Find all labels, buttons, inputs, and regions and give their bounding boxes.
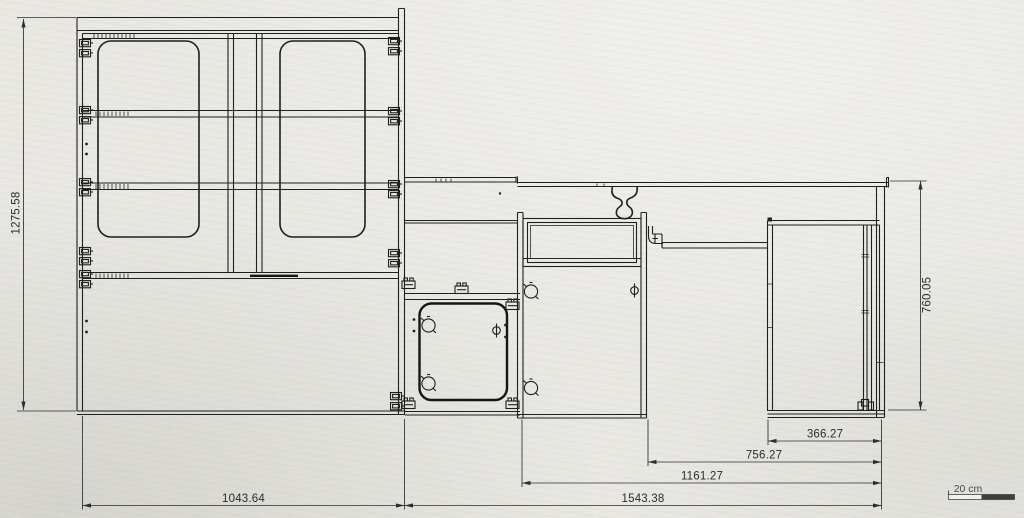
dim-label-inner-width: 756.27 xyxy=(746,450,782,462)
dimension-right-height: 760.05 xyxy=(888,181,934,410)
dimension-total-width: 1543.38 xyxy=(405,493,882,508)
door-hinge-cup xyxy=(421,375,436,392)
hinge-hardware xyxy=(389,250,403,267)
dimension-left-height: 1275.58 xyxy=(11,18,77,412)
dim-label-desk-width: 366.27 xyxy=(807,429,843,441)
dim-label-total-width: 1543.38 xyxy=(622,493,665,505)
dimension-desk-width: 366.27 xyxy=(768,429,882,444)
desk-unit xyxy=(768,187,885,418)
door-knob xyxy=(631,284,639,298)
dimension-mid-width: 1161.27 xyxy=(522,471,882,486)
dimension-left-width: 1043.64 xyxy=(83,493,405,508)
mounting-rail-hatch xyxy=(94,34,134,278)
door-hinge-cup xyxy=(524,283,539,300)
cad-furniture-elevation-drawing: 1275.58 760.05 366.27 756.27 1161.27 154… xyxy=(0,0,1024,518)
towel-hook-cutout xyxy=(612,187,637,219)
sink-cabinet xyxy=(402,221,520,416)
dim-label-right-height: 760.05 xyxy=(922,277,934,313)
dimension-inner-width: 756.27 xyxy=(648,450,882,465)
wall-cabinet xyxy=(77,9,405,415)
shelf-bracket xyxy=(649,226,664,248)
scale-bar-label: 20 cm xyxy=(954,483,983,495)
right-door-window xyxy=(280,41,365,237)
sink-cabinet-door xyxy=(420,304,508,401)
dimension-extension-lines xyxy=(83,416,882,510)
door-knob xyxy=(493,324,501,338)
dim-label-mid-width: 1161.27 xyxy=(681,471,723,483)
desk-shelf xyxy=(662,243,768,249)
hinge-hardware xyxy=(80,179,94,196)
left-door-window xyxy=(98,41,199,237)
countertop xyxy=(405,177,889,219)
drawer-unit xyxy=(518,213,664,419)
hinge-hardware xyxy=(80,107,94,124)
hinge-hardware xyxy=(80,271,94,288)
scale-bar: 20 cm xyxy=(949,483,1015,500)
hinge-hardware xyxy=(80,40,94,57)
latch-hardware xyxy=(455,283,468,294)
door-hinge-cup xyxy=(421,317,436,334)
corner-block xyxy=(768,218,773,222)
dim-label-left-width: 1043.64 xyxy=(222,493,265,505)
dim-label-left-height: 1275.58 xyxy=(11,192,23,235)
door-hinge-cup xyxy=(524,379,539,396)
hinge-hardware xyxy=(389,38,403,55)
hinge-hardware xyxy=(80,248,94,265)
scale-bar-fill xyxy=(982,495,1015,500)
